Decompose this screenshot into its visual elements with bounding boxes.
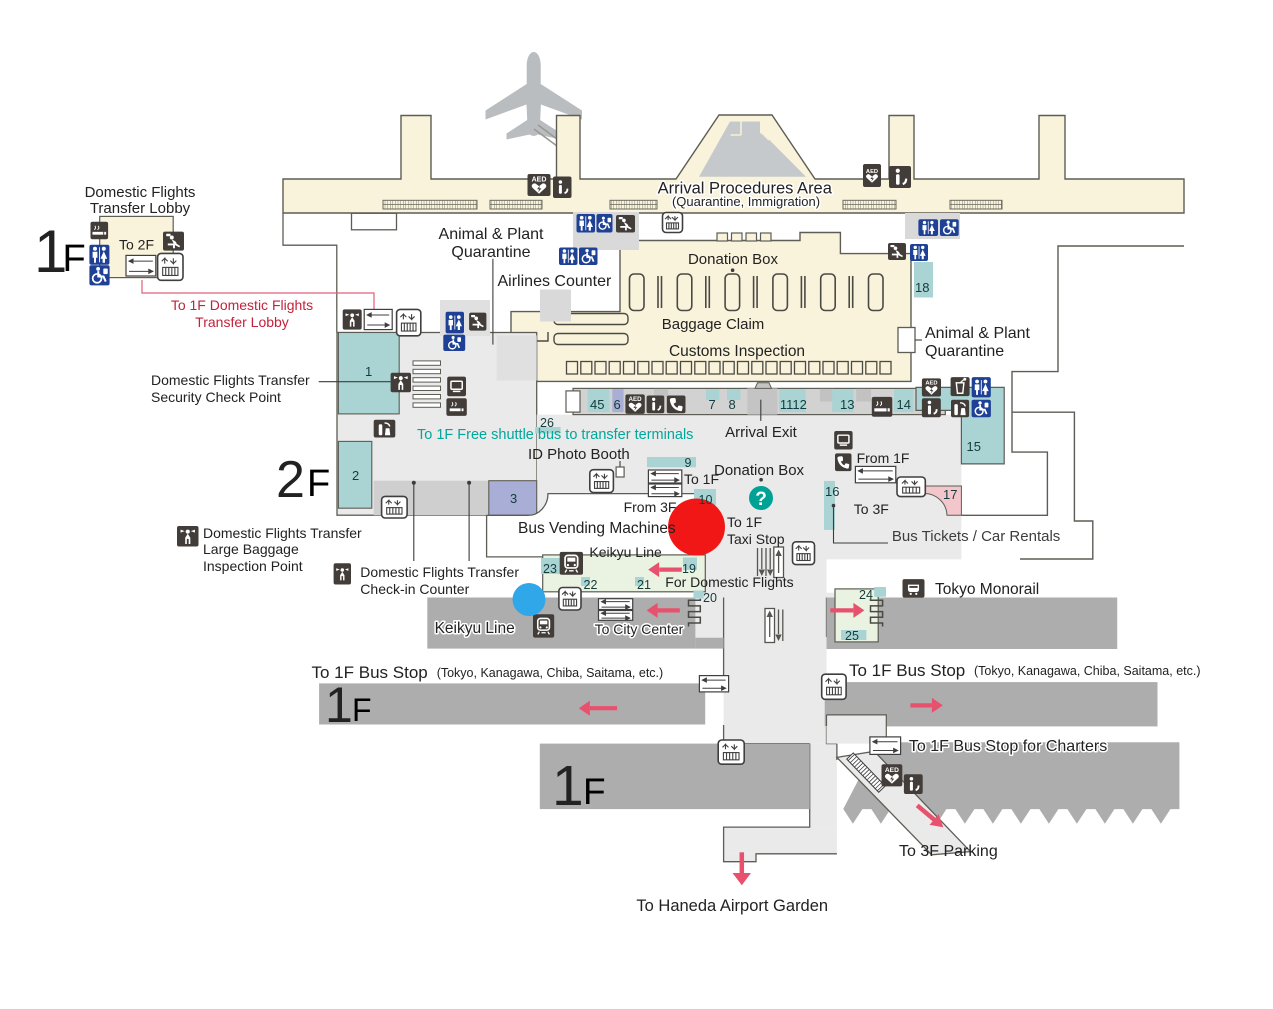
svg-text:AED: AED (629, 396, 643, 403)
svg-text:AED: AED (866, 169, 878, 175)
svg-text:To 1F Domestic Flights: To 1F Domestic Flights (171, 297, 313, 313)
svg-text:F: F (352, 692, 372, 728)
svg-text:Tokyo Monorail: Tokyo Monorail (935, 581, 1039, 598)
svg-text:Keikyu Line: Keikyu Line (589, 544, 662, 560)
svg-text:F: F (63, 238, 86, 280)
svg-text:Donation Box: Donation Box (714, 462, 805, 479)
svg-text:6: 6 (614, 397, 621, 412)
svg-text:To 1F Bus Stop: To 1F Bus Stop (849, 661, 965, 680)
svg-text:(Tokyo, Kanagawa, Chiba, Saita: (Tokyo, Kanagawa, Chiba, Saitama, etc.) (974, 664, 1201, 678)
svg-text:22: 22 (584, 578, 598, 592)
svg-text:8: 8 (729, 397, 736, 412)
svg-text:AED: AED (885, 767, 899, 774)
svg-text:7: 7 (709, 397, 716, 412)
svg-text:19: 19 (682, 562, 696, 576)
svg-text:(Tokyo, Kanagawa, Chiba, Saita: (Tokyo, Kanagawa, Chiba, Saitama, etc.) (437, 666, 664, 680)
svg-text:To 1F Bus Stop for Charters: To 1F Bus Stop for Charters (909, 738, 1107, 755)
svg-text:Quarantine: Quarantine (451, 244, 530, 261)
svg-text:21: 21 (637, 578, 651, 592)
svg-text:Large Baggage: Large Baggage (203, 541, 299, 557)
svg-text:9: 9 (685, 456, 692, 470)
svg-text:To City Center: To City Center (595, 621, 684, 637)
svg-text:AED: AED (532, 177, 547, 184)
svg-text:1112: 1112 (780, 397, 807, 412)
svg-text:For Domestic Flights: For Domestic Flights (665, 574, 793, 590)
svg-text:Check-in Counter: Check-in Counter (360, 581, 469, 597)
svg-text:To 2F: To 2F (119, 237, 154, 253)
svg-text:ID Photo Booth: ID Photo Booth (528, 446, 630, 463)
svg-text:Baggage Claim: Baggage Claim (662, 316, 765, 333)
svg-text:Customs Inspection: Customs Inspection (669, 343, 805, 360)
svg-text:3: 3 (510, 491, 517, 506)
svg-text:Security Check Point: Security Check Point (151, 389, 281, 405)
svg-text:Inspection Point: Inspection Point (203, 558, 303, 574)
svg-text:Bus Vending Machines: Bus Vending Machines (518, 520, 676, 537)
svg-text:From 1F: From 1F (857, 450, 910, 466)
svg-text:17: 17 (943, 487, 957, 502)
svg-text:15: 15 (967, 439, 981, 454)
svg-text:Taxi Stop: Taxi Stop (727, 531, 785, 547)
svg-text:16: 16 (825, 484, 839, 499)
svg-text:25: 25 (845, 629, 859, 643)
svg-text:F: F (583, 771, 606, 812)
svg-text:Arrival Exit: Arrival Exit (725, 424, 798, 441)
svg-text:14: 14 (897, 397, 911, 412)
svg-text:Domestic Flights Transfer: Domestic Flights Transfer (360, 564, 519, 580)
svg-text:Animal & Plant: Animal & Plant (439, 226, 544, 243)
svg-text:AED: AED (925, 381, 937, 387)
svg-text:Bus Tickets / Car Rentals: Bus Tickets / Car Rentals (892, 528, 1060, 545)
svg-text:26: 26 (540, 416, 554, 430)
svg-text:24: 24 (859, 588, 873, 602)
svg-text:To 3F Parking: To 3F Parking (899, 843, 998, 860)
svg-text:13: 13 (840, 397, 854, 412)
svg-text:?: ? (755, 489, 767, 510)
svg-text:Keikyu Line: Keikyu Line (435, 620, 515, 637)
svg-text:2: 2 (352, 468, 359, 483)
svg-text:23: 23 (543, 562, 557, 576)
svg-text:To 1F Free shuttle bus to tran: To 1F Free shuttle bus to transfer termi… (417, 427, 693, 443)
svg-text:(Quarantine, Immigration): (Quarantine, Immigration) (672, 194, 820, 209)
svg-text:To Haneda Airport Garden: To Haneda Airport Garden (636, 897, 828, 915)
svg-text:Animal & Plant: Animal & Plant (925, 325, 1030, 342)
svg-text:20: 20 (703, 591, 717, 605)
svg-text:1: 1 (552, 754, 584, 818)
svg-text:45: 45 (590, 397, 604, 412)
svg-text:Transfer Lobby: Transfer Lobby (195, 314, 289, 330)
svg-text:10: 10 (699, 493, 713, 507)
svg-text:2: 2 (276, 451, 305, 509)
svg-text:Domestic Flights Transfer: Domestic Flights Transfer (151, 372, 310, 388)
svg-text:Domestic Flights Transfer: Domestic Flights Transfer (203, 525, 362, 541)
svg-text:Domestic Flights: Domestic Flights (85, 184, 196, 201)
svg-text:F: F (307, 463, 330, 505)
svg-text:1: 1 (365, 364, 372, 379)
svg-text:To 1F: To 1F (727, 514, 762, 530)
svg-text:Transfer Lobby: Transfer Lobby (90, 200, 191, 217)
svg-text:Donation Box: Donation Box (688, 251, 779, 268)
svg-text:Airlines Counter: Airlines Counter (498, 273, 613, 290)
svg-text:To 3F: To 3F (854, 501, 889, 517)
svg-text:1: 1 (325, 677, 353, 733)
svg-text:From 3F: From 3F (624, 499, 677, 515)
svg-text:Quarantine: Quarantine (925, 343, 1004, 360)
svg-text:18: 18 (915, 280, 929, 295)
